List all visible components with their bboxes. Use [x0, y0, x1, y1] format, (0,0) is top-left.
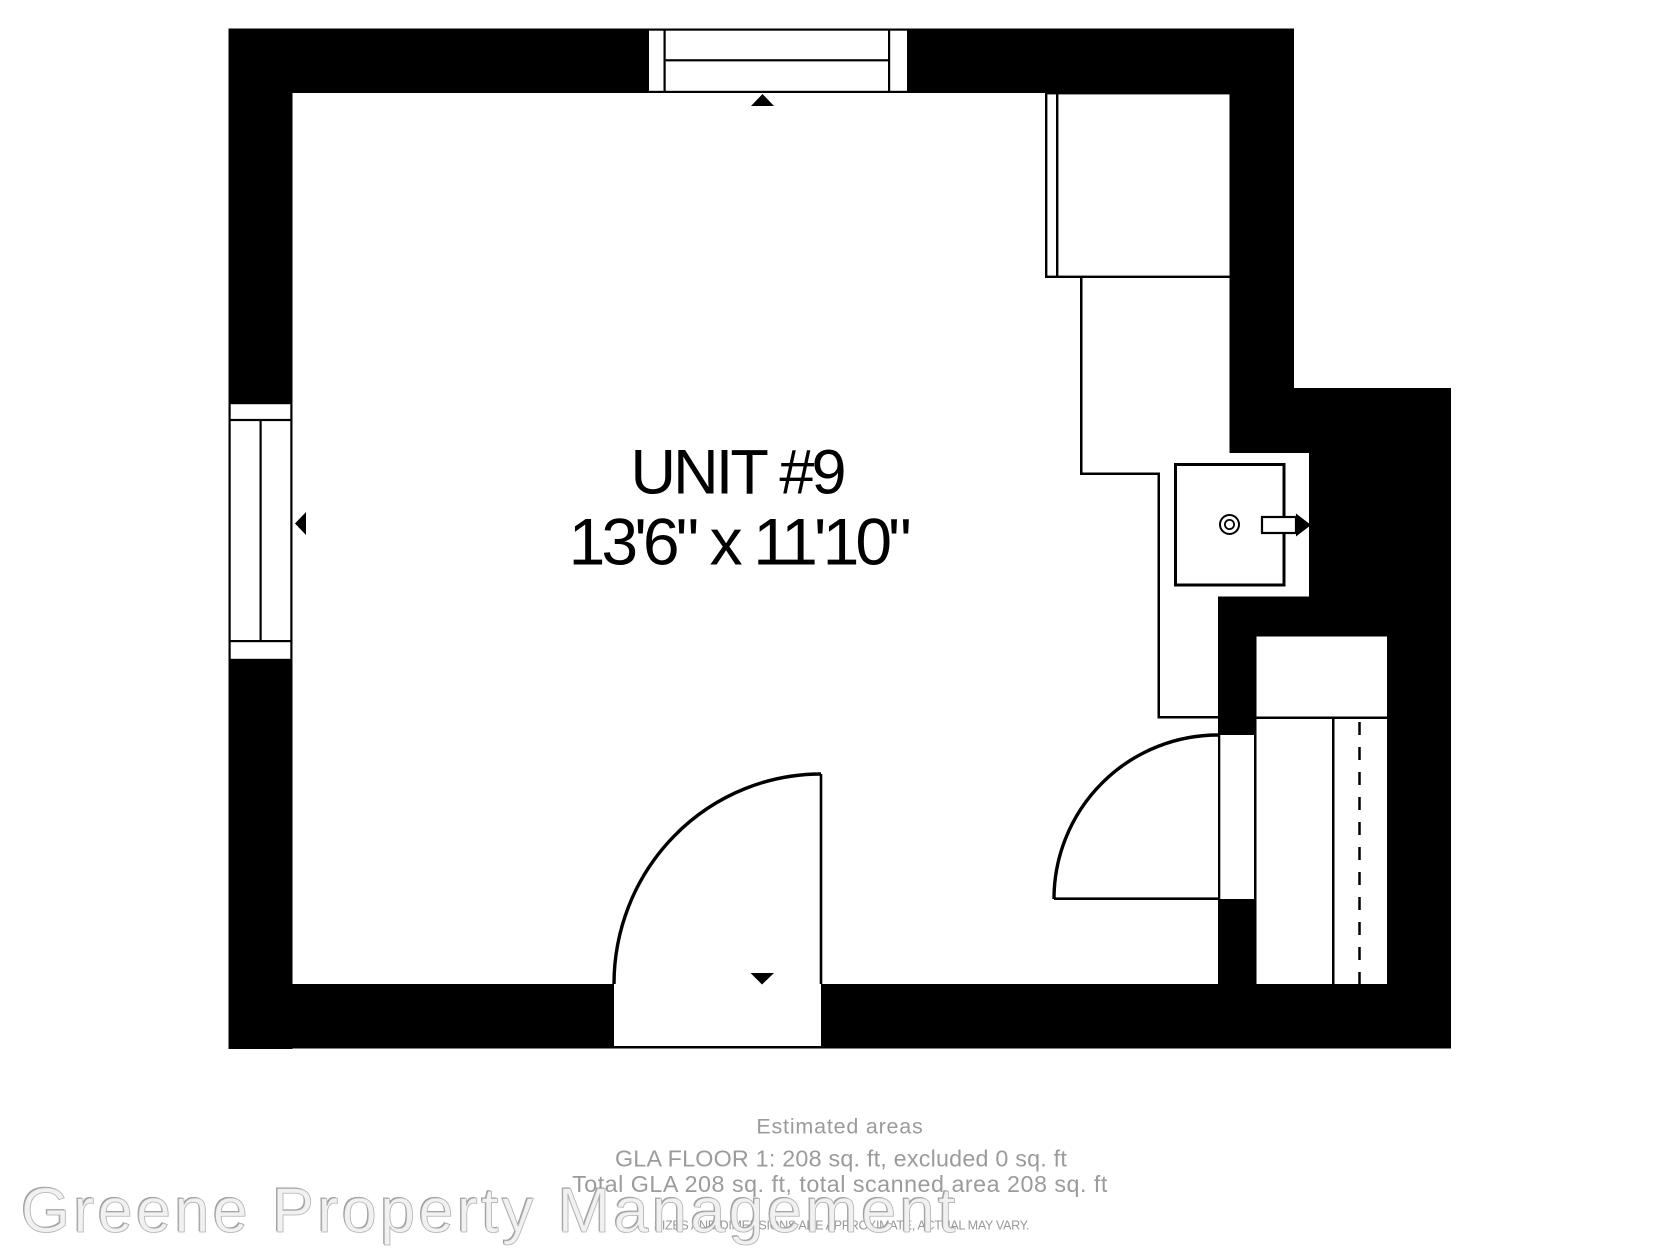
svg-text:13'6" x 11'10": 13'6" x 11'10" — [569, 505, 910, 579]
svg-text:Greene Property Management: Greene Property Management — [21, 1176, 959, 1246]
svg-text:Estimated areas: Estimated areas — [756, 1115, 923, 1139]
svg-text:UNIT #9: UNIT #9 — [631, 438, 845, 508]
svg-text:GLA FLOOR 1: 208 sq. ft, exclu: GLA FLOOR 1: 208 sq. ft, excluded 0 sq. … — [615, 1145, 1067, 1171]
